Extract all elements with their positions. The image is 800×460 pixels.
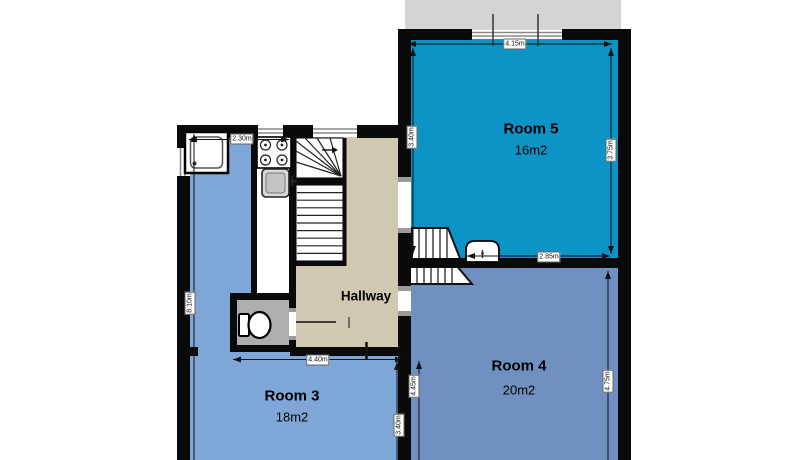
outside-area <box>405 0 621 30</box>
window-entry-left <box>258 126 283 137</box>
room-4-floor <box>404 262 626 460</box>
window-entry-right <box>313 126 357 137</box>
floor-plan: Room 5 16m2 Room 4 20m2 Room 3 18m2 Hall… <box>0 0 800 460</box>
basin <box>466 241 499 262</box>
stove <box>257 137 291 168</box>
main-staircase <box>296 138 343 261</box>
toilet <box>239 312 271 338</box>
floor-plan-graphics <box>0 0 800 460</box>
door-room5 <box>398 177 411 233</box>
shower <box>185 132 228 173</box>
door-room4 <box>398 286 411 316</box>
